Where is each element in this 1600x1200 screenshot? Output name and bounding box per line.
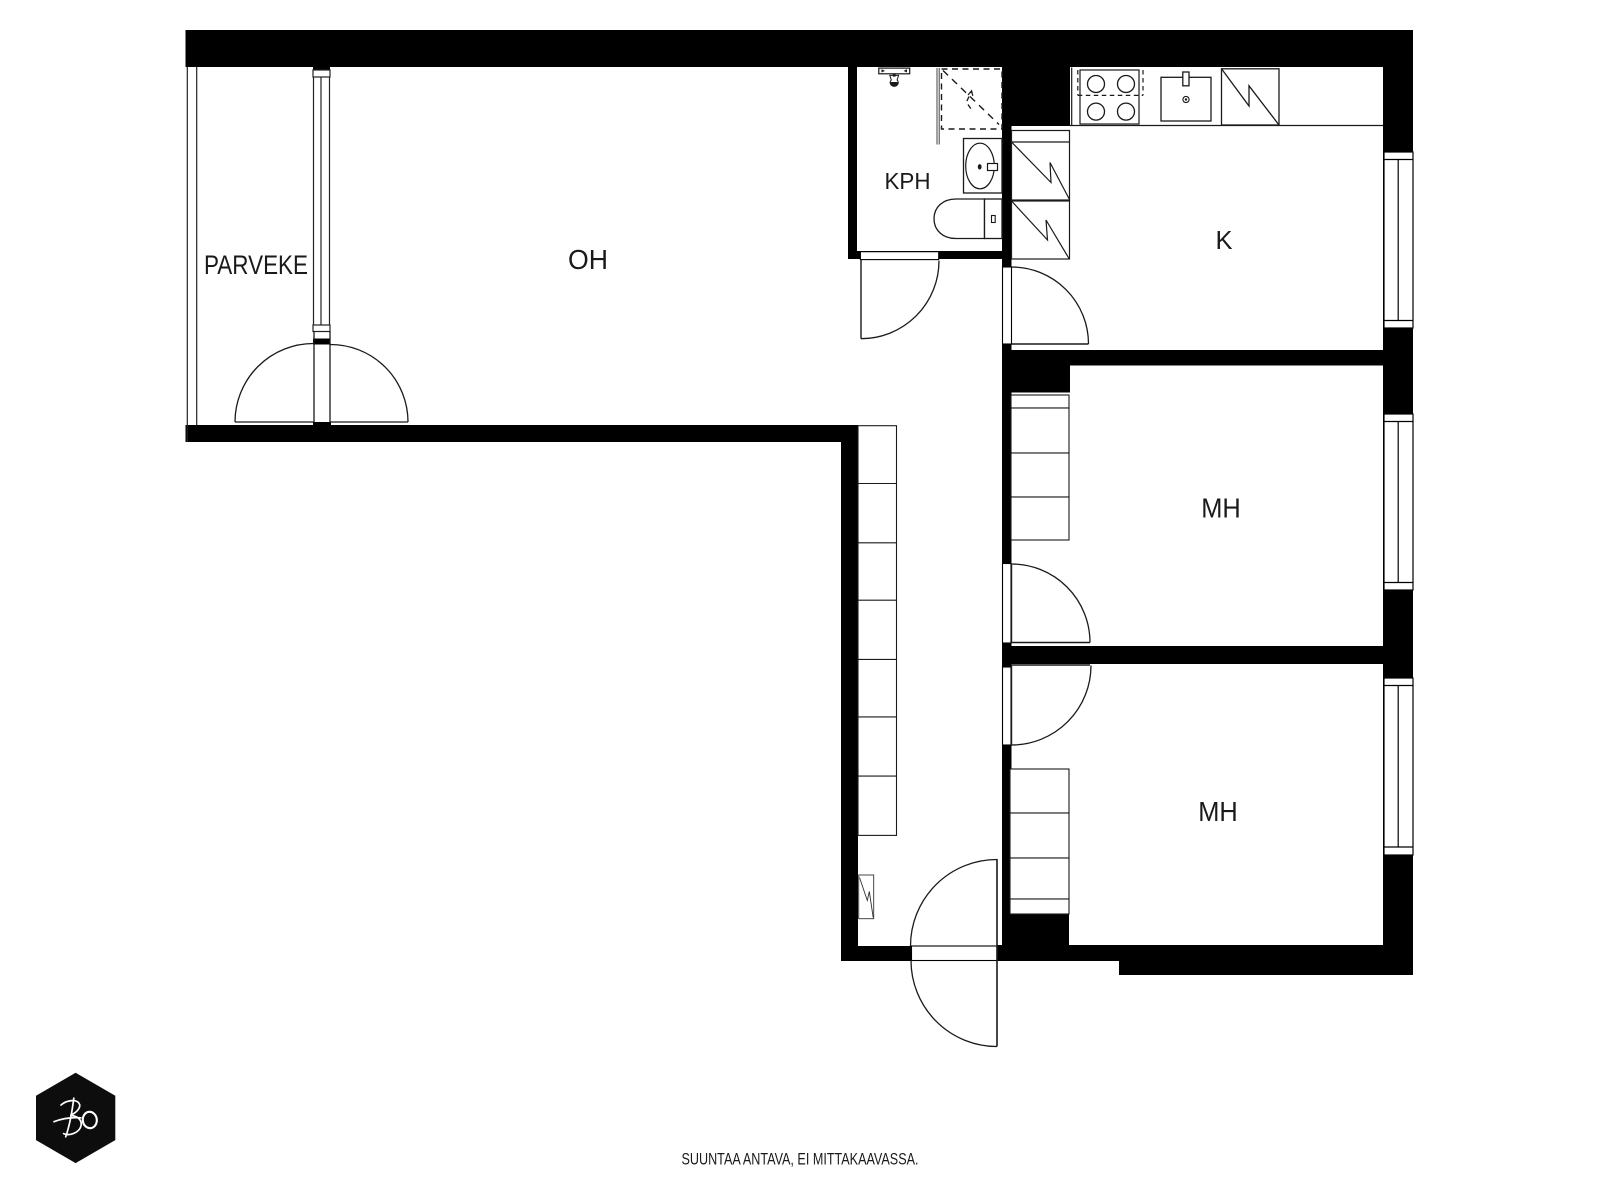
svg-text:MH: MH xyxy=(1201,493,1241,524)
svg-text:OH: OH xyxy=(568,244,608,275)
svg-text:K: K xyxy=(1215,227,1232,255)
svg-text:PARVEKE: PARVEKE xyxy=(204,250,308,280)
svg-text:SUUNTAA ANTAVA, EI MITTAKAAVAS: SUUNTAA ANTAVA, EI MITTAKAAVASSA. xyxy=(682,1149,919,1168)
svg-text:MH: MH xyxy=(1198,796,1238,827)
svg-text:KPH: KPH xyxy=(885,168,931,194)
